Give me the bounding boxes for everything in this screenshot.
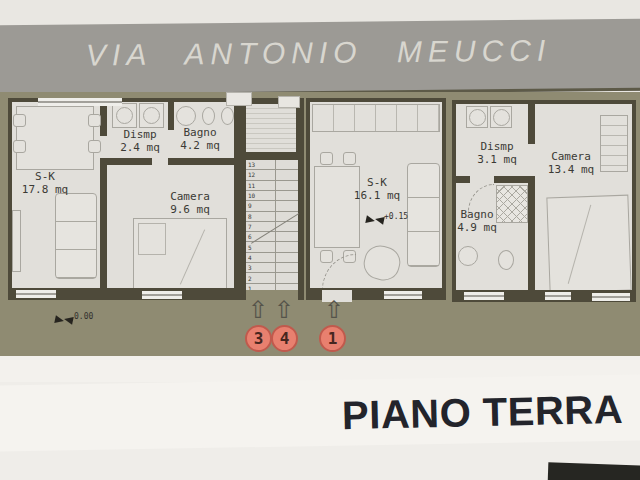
vent-shaft: [226, 92, 252, 106]
room-name: Camera: [155, 190, 225, 203]
wall: [528, 178, 535, 302]
entrance-arrow-icon: ⇧: [248, 296, 268, 324]
sink-icon: [458, 246, 478, 266]
stair-step-number: 3: [248, 265, 257, 271]
bidet-icon: [221, 107, 234, 125]
room-label-camera-right: Camera 13.4 mq: [536, 150, 606, 176]
stair-step-numbers: 13 12 11 10 9 8 7 6 5 4 3 2 1: [248, 161, 257, 293]
washer-icon: [112, 103, 137, 128]
console: [12, 210, 21, 272]
entrance-marker-1: 1: [319, 325, 346, 352]
window: [384, 291, 422, 299]
stair-landing: [246, 104, 296, 152]
dining-table: [16, 106, 94, 170]
bed: [133, 218, 227, 292]
room-label-sk-middle: S-K 16.1 mq: [342, 176, 412, 202]
room-name: Camera: [536, 150, 606, 163]
stair-step-number: 4: [248, 255, 257, 261]
washer-icon: [139, 103, 164, 128]
room-name: Bagno: [442, 208, 512, 221]
room-label-dismp-left: Dismp 2.4 mq: [105, 128, 175, 154]
wall: [452, 176, 470, 183]
entrance-marker-3: 3: [245, 325, 272, 352]
entrance-arrow-icon: ⇧: [324, 296, 344, 324]
stair-step-number: 12: [248, 172, 257, 178]
room-area: 2.4 mq: [105, 141, 175, 154]
window: [16, 290, 56, 298]
wall: [107, 158, 152, 165]
room-label-sk-left: S-K 17.8 mq: [14, 170, 76, 196]
kitchen-counter: [312, 104, 440, 132]
room-label-dismp-right: Dismp 3.1 mq: [462, 140, 532, 166]
room-name: S-K: [342, 176, 412, 189]
room-name: Dismp: [105, 128, 175, 141]
ground-level-value: 0.00: [74, 312, 93, 321]
room-area: 3.1 mq: [462, 153, 532, 166]
washer-icon: [490, 106, 512, 128]
stair-step-number: 13: [248, 162, 257, 168]
stair-step-number: 7: [248, 224, 257, 230]
room-area: 17.8 mq: [14, 183, 76, 196]
sofa: [55, 193, 97, 279]
wall: [528, 100, 535, 144]
window: [545, 292, 571, 300]
interior-level-value: +0.15: [384, 212, 408, 221]
room-area: 9.6 mq: [155, 203, 225, 216]
chair: [320, 250, 333, 263]
wall: [494, 176, 535, 183]
window: [38, 98, 122, 106]
window: [464, 292, 504, 300]
floor-title: PIANO TERRA: [342, 387, 624, 438]
room-name: Bagno: [170, 126, 230, 139]
washer-icon: [466, 106, 488, 128]
toilet-icon: [498, 250, 514, 270]
room-name: S-K: [14, 170, 76, 183]
room-label-bagno-left: Bagno 4.2 mq: [170, 126, 230, 152]
bed: [546, 195, 631, 294]
entrance-marker-4: 4: [271, 325, 298, 352]
stair-step-number: 10: [248, 193, 257, 199]
room-area: 16.1 mq: [342, 189, 412, 202]
chair: [343, 152, 356, 165]
stair-step-number: 11: [248, 183, 257, 189]
stair-step-number: 2: [248, 276, 257, 282]
stair-step-number: 8: [248, 214, 257, 220]
room-name: Dismp: [462, 140, 532, 153]
room-label-bagno-right: Bagno 4.9 mq: [442, 208, 512, 234]
toilet-icon: [202, 107, 215, 125]
wall: [100, 158, 107, 298]
floor-plan-photo: VIA ANTONIO MEUCCI 13 12 11 10 9 8 7 6 5…: [0, 0, 640, 480]
room-area: 13.4 mq: [536, 163, 606, 176]
chair: [88, 140, 101, 153]
photo-corner-object: [548, 462, 640, 480]
chair: [13, 114, 26, 127]
room-area: 4.9 mq: [442, 221, 512, 234]
room-label-camera-left: Camera 9.6 mq: [155, 190, 225, 216]
sink-icon: [176, 106, 196, 126]
vent-shaft: [278, 96, 300, 108]
window: [142, 291, 182, 299]
room-area: 4.2 mq: [170, 139, 230, 152]
chair: [13, 140, 26, 153]
wall: [168, 158, 238, 165]
window: [592, 293, 630, 301]
entrance-arrow-icon: ⇧: [274, 296, 294, 324]
chair: [320, 152, 333, 165]
stair-step-number: 9: [248, 203, 257, 209]
chair: [88, 114, 101, 127]
street-band: VIA ANTONIO MEUCCI: [0, 19, 640, 98]
stair-step-number: 5: [248, 245, 257, 251]
street-name: VIA ANTONIO MEUCCI: [86, 34, 552, 73]
